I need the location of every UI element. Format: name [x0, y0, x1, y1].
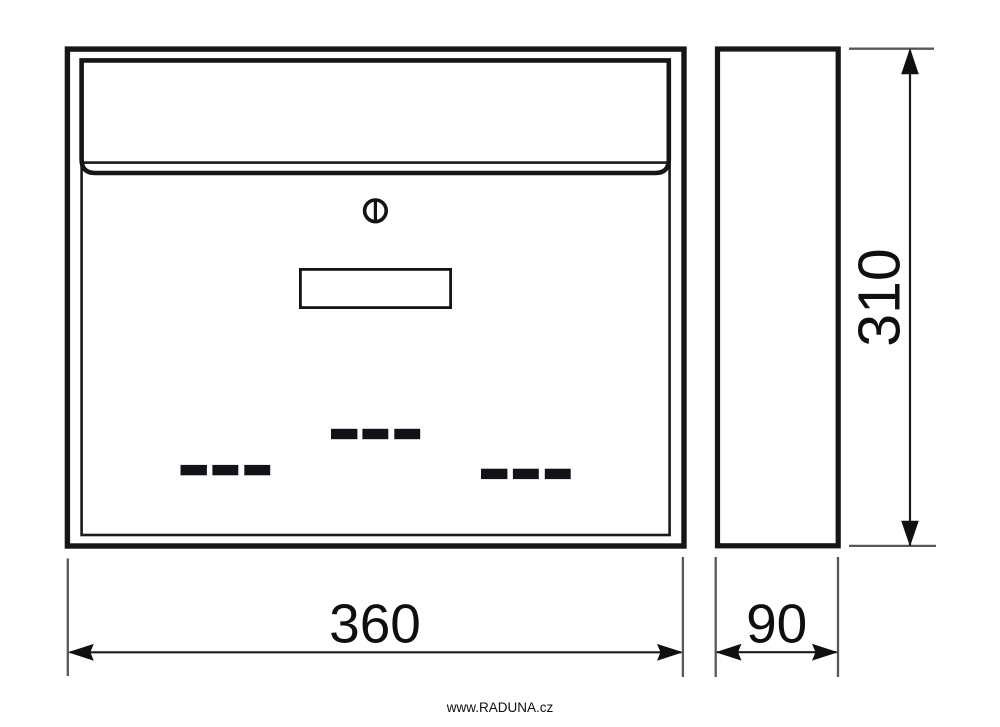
svg-text:360: 360 [329, 593, 421, 655]
svg-text:310: 310 [847, 248, 913, 346]
svg-text:www.RADUNA.cz: www.RADUNA.cz [446, 700, 554, 715]
svg-text:90: 90 [746, 593, 807, 655]
